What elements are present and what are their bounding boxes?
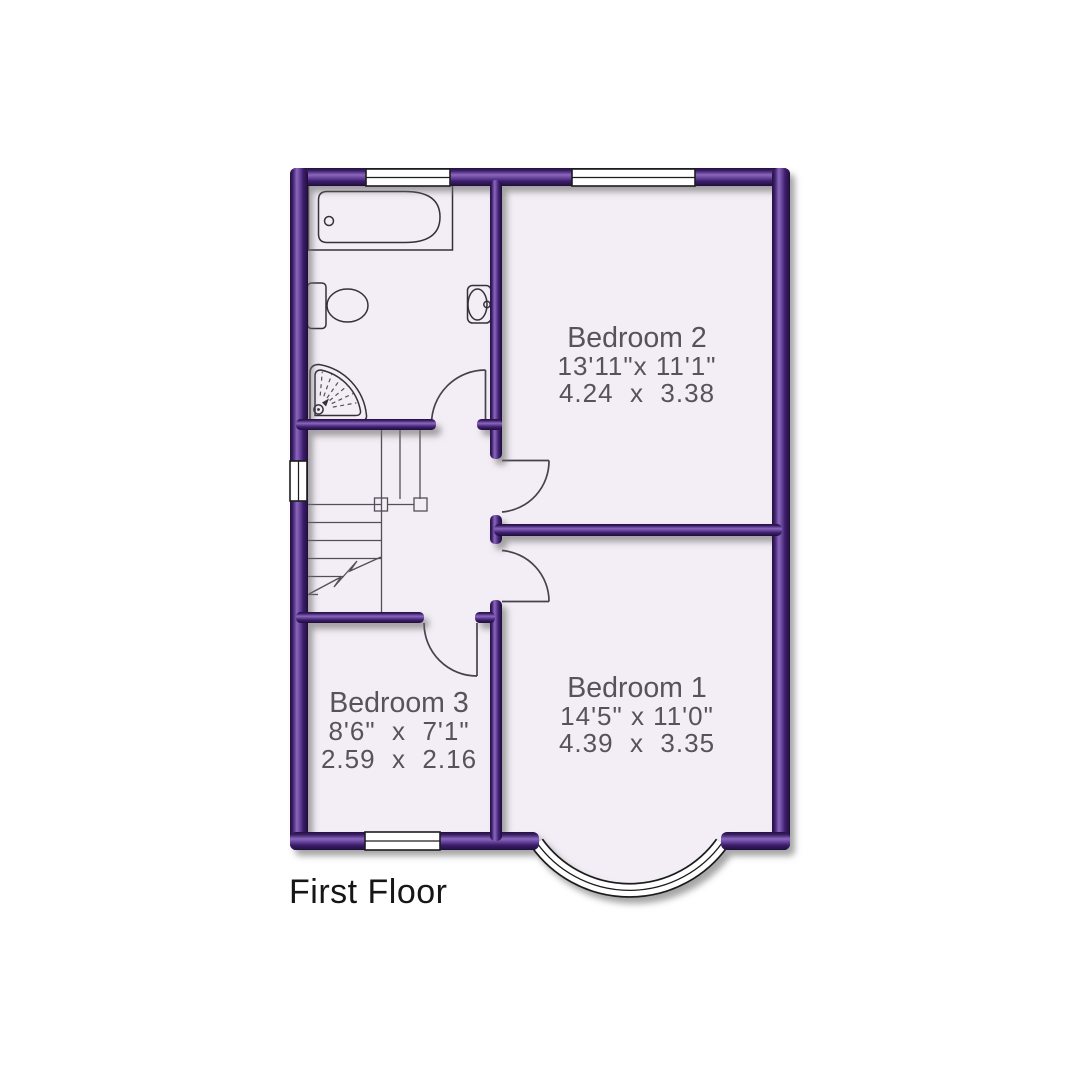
wall-center-lower (490, 600, 502, 841)
wall-bathroom-door-stub (477, 419, 502, 430)
window-bedroom3 (365, 832, 440, 850)
bedroom1-imperial: 14'5" x 11'0" (560, 701, 714, 731)
wall-outer-top (290, 168, 790, 186)
window-bathroom (366, 169, 450, 186)
bedroom3-imperial: 8'6" x 7'1" (328, 716, 469, 746)
bedroom2-name: Bedroom 2 (567, 322, 706, 354)
bedroom1-name: Bedroom 1 (567, 672, 706, 704)
wall-bedroom3-door-stub (475, 612, 495, 623)
bedroom2-imperial: 13'11"x 11'1" (558, 351, 717, 381)
bedroom1-metric: 4.39 x 3.35 (559, 728, 715, 758)
floor-title: First Floor (289, 873, 448, 911)
wall-outer-left (290, 168, 308, 850)
window-bedroom2 (572, 169, 695, 186)
floorplan-canvas: Bedroom 2 13'11"x 11'1" 4.24 x 3.38 Bedr… (0, 0, 1080, 1080)
bedroom3-metric: 2.59 x 2.16 (321, 744, 477, 774)
wall-bedroom-divider (494, 524, 782, 536)
window-stairs (290, 461, 307, 501)
wall-bedroom3-top (296, 612, 424, 623)
wall-outer-bottom-right (721, 832, 790, 850)
wall-center-upper (490, 180, 502, 459)
wall-outer-right (772, 168, 790, 850)
wall-bathroom-bottom (296, 419, 436, 430)
bedroom3-name: Bedroom 3 (329, 687, 468, 719)
bedroom2-metric: 4.24 x 3.38 (559, 378, 715, 408)
